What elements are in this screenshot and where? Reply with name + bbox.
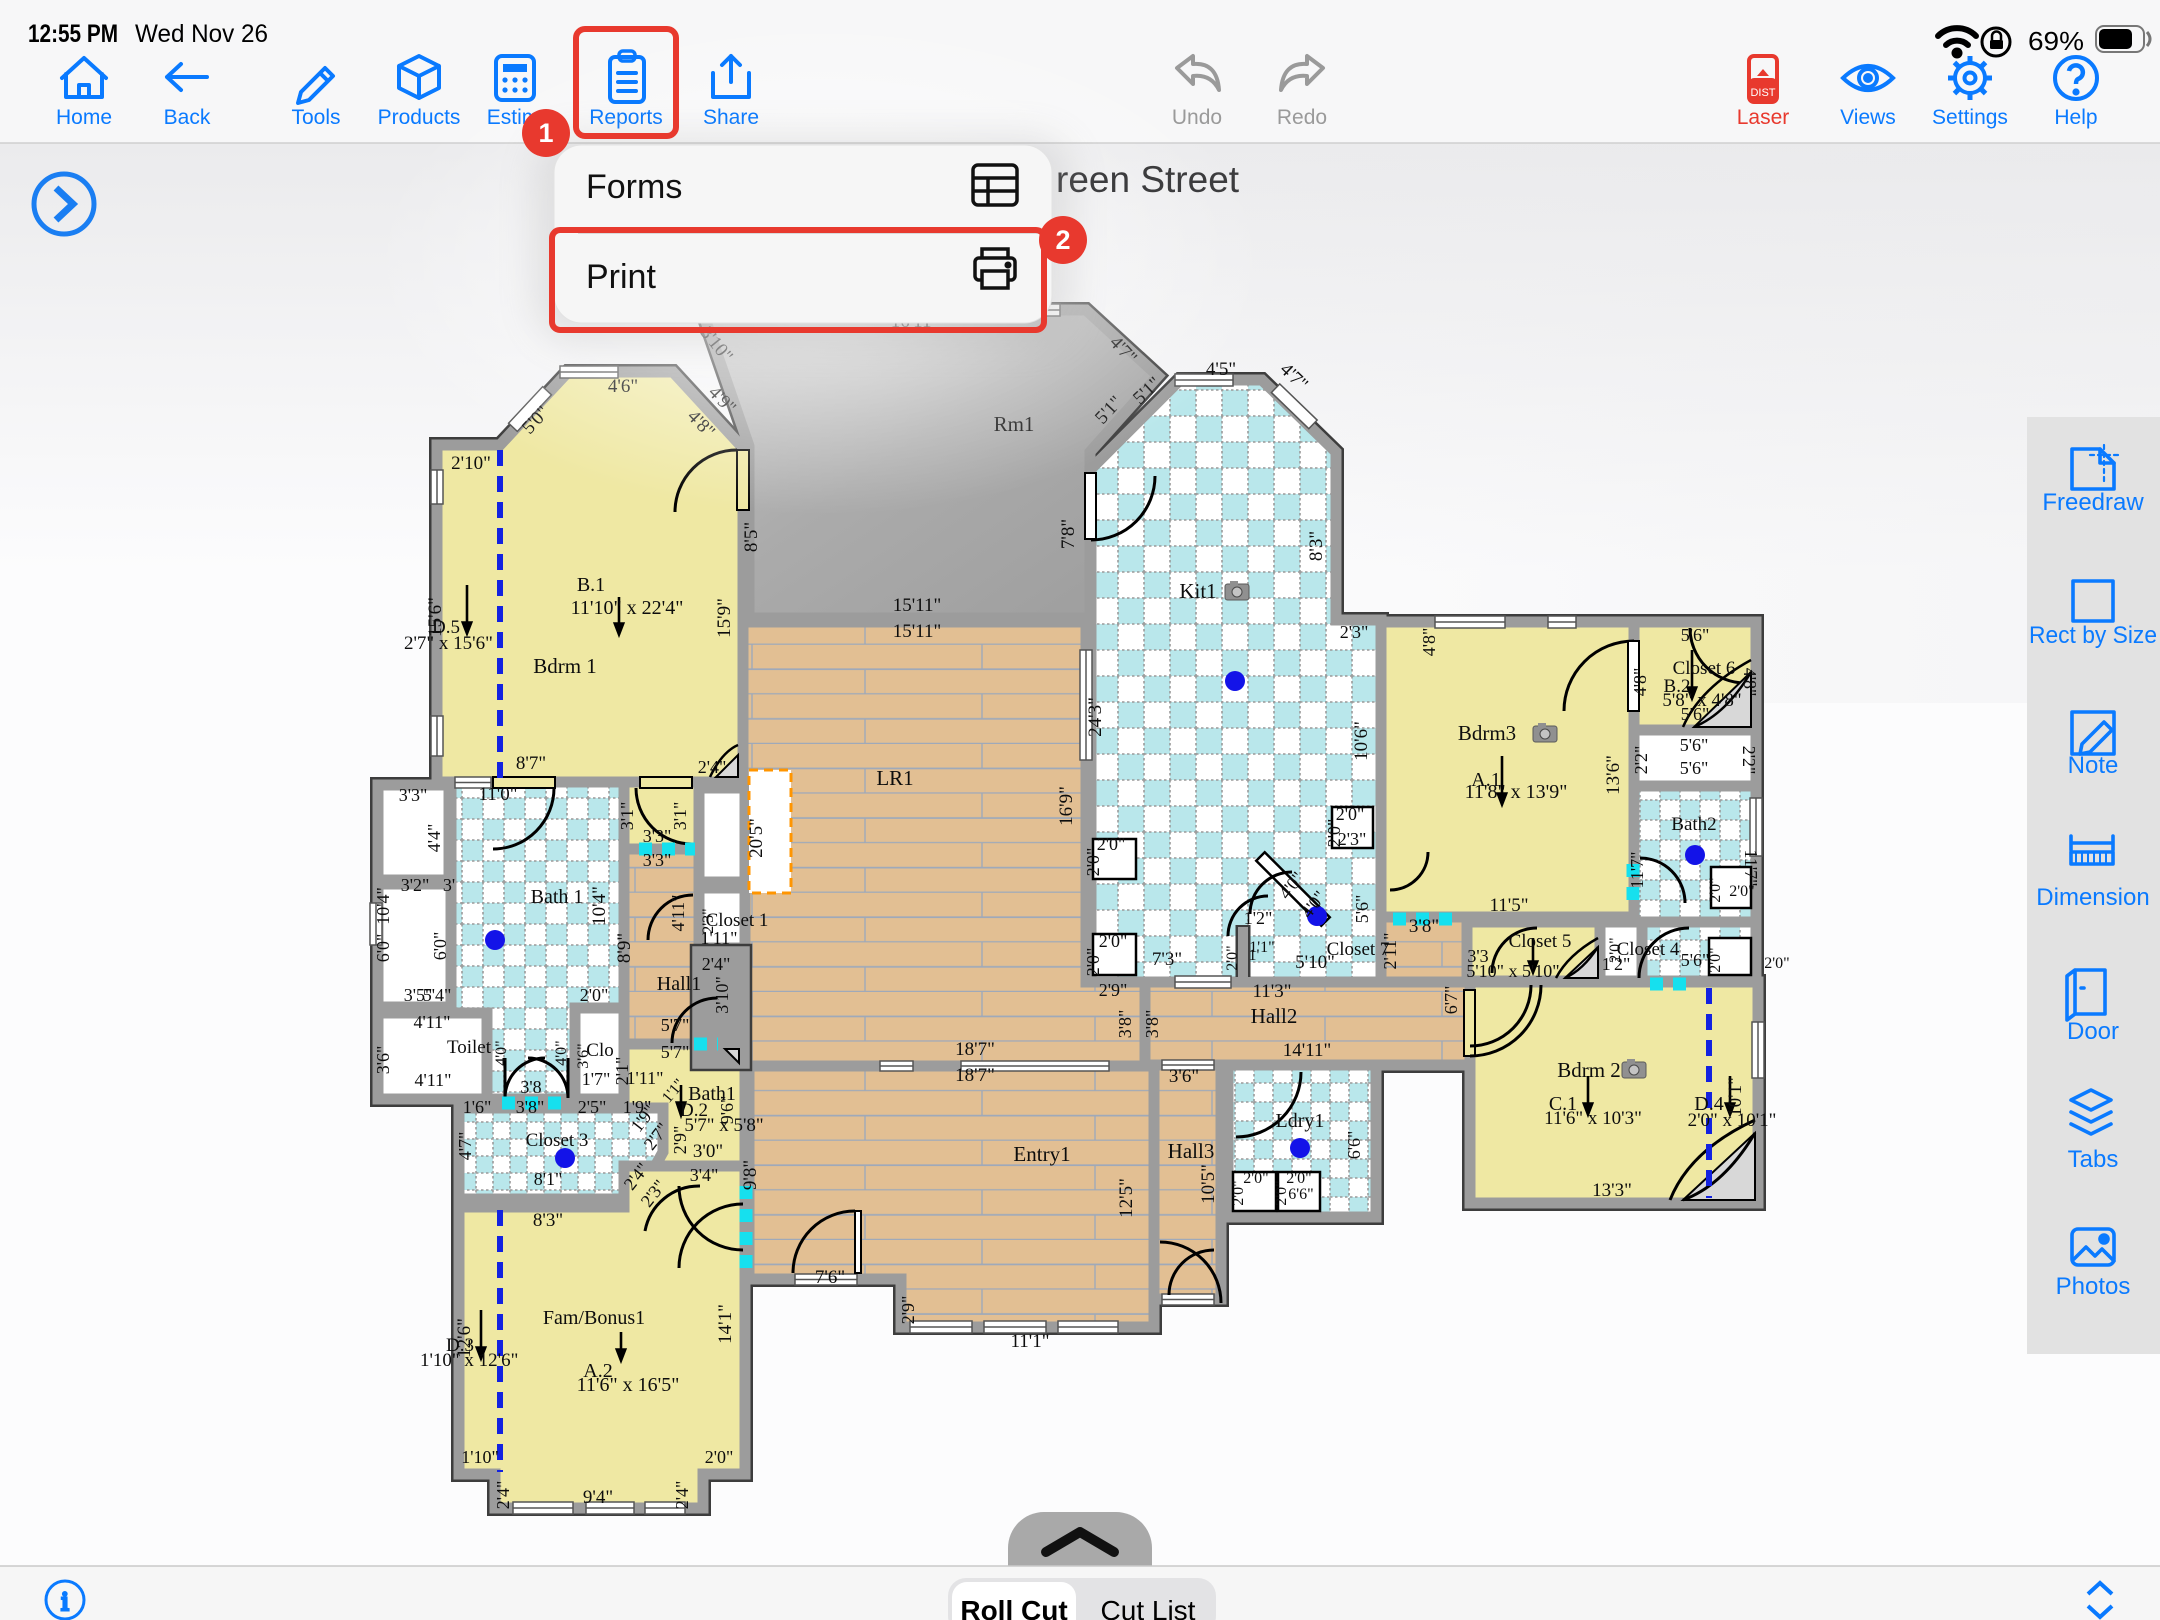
svg-text:9'4": 9'4" (583, 1487, 613, 1508)
svg-text:Bath2: Bath2 (1671, 814, 1716, 835)
svg-text:3'8": 3'8" (1142, 1010, 1162, 1039)
svg-text:2'0": 2'0" (1083, 948, 1103, 977)
svg-text:5'6": 5'6" (1680, 735, 1709, 755)
svg-text:Bdrm 1: Bdrm 1 (533, 654, 597, 678)
svg-text:4'8": 4'8" (1419, 628, 1439, 657)
svg-text:2'0": 2'0" (1707, 947, 1724, 972)
svg-text:4'11": 4'11" (415, 1070, 452, 1090)
svg-text:2'9": 2'9" (898, 1296, 918, 1325)
svg-text:11'0": 11'0" (479, 784, 518, 805)
svg-text:8'1": 8'1" (534, 1169, 563, 1189)
svg-text:5'7": 5'7" (661, 1015, 690, 1035)
svg-text:2'4": 2'4" (702, 954, 731, 974)
svg-text:3'8": 3'8" (1409, 916, 1439, 937)
svg-text:Closet 5: Closet 5 (1509, 931, 1572, 952)
svg-text:Help: Help (2054, 106, 2097, 129)
svg-text:4'0": 4'0" (553, 1040, 570, 1065)
svg-text:4'4": 4'4" (424, 824, 444, 853)
svg-text:2'0": 2'0" (1230, 1180, 1247, 1205)
svg-text:Dimension: Dimension (2036, 884, 2149, 911)
svg-text:Ldry1: Ldry1 (1276, 1110, 1325, 1132)
svg-text:2'11": 2'11" (1380, 933, 1400, 970)
svg-text:Undo: Undo (1172, 106, 1222, 129)
svg-text:LR1: LR1 (876, 766, 913, 790)
svg-text:2'3": 2'3" (1340, 622, 1369, 642)
svg-text:8'3": 8'3" (1306, 531, 1327, 561)
svg-text:Bdrm3: Bdrm3 (1458, 721, 1516, 745)
svg-text:15'11": 15'11" (893, 621, 941, 642)
svg-text:10'1": 10'1" (1725, 1077, 1746, 1117)
svg-text:5'6": 5'6" (1681, 704, 1710, 724)
svg-text:2'4": 2'4" (672, 1481, 692, 1510)
svg-text:5'6": 5'6" (1680, 758, 1709, 778)
svg-text:Rect by Size: Rect by Size (2029, 622, 2157, 649)
svg-text:Toilet: Toilet (447, 1037, 492, 1058)
svg-text:Tools: Tools (291, 106, 340, 129)
svg-text:2'0": 2'0" (580, 985, 609, 1005)
svg-text:16'9": 16'9" (1056, 786, 1077, 826)
svg-text:10'4": 10'4" (373, 887, 393, 925)
svg-text:Fam/Bonus1: Fam/Bonus1 (543, 1307, 645, 1329)
svg-text:Share: Share (703, 106, 759, 129)
svg-text:6'0": 6'0" (430, 932, 450, 961)
svg-text:24'3": 24'3" (1085, 697, 1106, 737)
svg-text:Cut List: Cut List (1101, 1595, 1196, 1620)
svg-text:Reports: Reports (589, 106, 663, 129)
svg-text:9'6": 9'6" (717, 1096, 737, 1125)
svg-text:Redo: Redo (1277, 106, 1327, 129)
svg-text:Settings: Settings (1932, 106, 2008, 129)
svg-text:5'6": 5'6" (1352, 895, 1372, 924)
svg-text:1'11": 1'11" (701, 928, 738, 948)
svg-text:3'6": 3'6" (575, 1043, 592, 1068)
svg-text:Hall1: Hall1 (657, 973, 701, 995)
svg-text:5'4": 5'4" (423, 985, 452, 1005)
svg-text:11'5": 11'5" (1490, 895, 1529, 916)
svg-text:11'6" x 16'5": 11'6" x 16'5" (577, 1374, 680, 1396)
svg-text:Bath 1: Bath 1 (531, 886, 584, 908)
svg-text:2'0": 2'0" (1729, 883, 1754, 900)
svg-text:8'7": 8'7" (516, 753, 546, 774)
svg-text:2'2": 2'2" (1739, 746, 1759, 775)
svg-text:4'8": 4'8" (1740, 668, 1760, 697)
svg-text:7'6": 7'6" (815, 1267, 845, 1288)
svg-text:3'6": 3'6" (373, 1046, 393, 1075)
svg-text:Tabs: Tabs (2068, 1146, 2119, 1173)
svg-text:Home: Home (56, 106, 112, 129)
svg-text:3': 3' (443, 875, 455, 895)
svg-text:Bdrm 2: Bdrm 2 (1557, 1058, 1621, 1082)
svg-text:2'4": 2'4" (698, 757, 727, 777)
svg-text:6'6": 6'6" (1288, 1186, 1313, 1203)
svg-text:Hall2: Hall2 (1251, 1004, 1298, 1028)
svg-text:11'10" x 22'4": 11'10" x 22'4" (571, 597, 684, 619)
svg-text:2'0": 2'0" (1707, 877, 1724, 902)
svg-text:13'6": 13'6" (1603, 755, 1624, 795)
svg-text:2'10": 2'10" (451, 453, 491, 474)
svg-text:10'5": 10'5" (1198, 1164, 1219, 1204)
svg-text:Wed Nov 26: Wed Nov 26 (135, 20, 268, 48)
svg-text:12'5": 12'5" (1116, 1178, 1137, 1218)
svg-text:2'0": 2'0" (1286, 1170, 1311, 1187)
svg-text:3'6": 3'6" (1169, 1066, 1199, 1087)
svg-text:5'7": 5'7" (661, 1042, 690, 1062)
svg-text:Forms: Forms (586, 168, 682, 206)
svg-text:6'7": 6'7" (1441, 986, 1461, 1015)
svg-text:1'11": 1'11" (627, 1068, 664, 1088)
svg-text:11'1": 11'1" (1011, 1331, 1050, 1352)
svg-text:2'2": 2'2" (1631, 746, 1651, 775)
svg-text:5'10" x 5'10": 5'10" x 5'10" (1466, 961, 1559, 981)
svg-text:2'5": 2'5" (578, 1097, 607, 1117)
svg-text:Laser: Laser (1737, 106, 1790, 129)
svg-text:3'0": 3'0" (693, 1141, 723, 1162)
svg-text:2'0": 2'0" (1243, 1170, 1268, 1187)
svg-text:4'11": 4'11" (668, 895, 688, 932)
svg-text:11'8" x 13'9": 11'8" x 13'9" (1465, 781, 1568, 803)
svg-text:4'7": 4'7" (455, 1132, 475, 1161)
svg-text:Products: Products (378, 106, 461, 129)
svg-text:5'6": 5'6" (1681, 625, 1710, 645)
svg-text:7'8": 7'8" (1058, 519, 1079, 549)
svg-text:B.1: B.1 (577, 574, 605, 596)
svg-text:2'0": 2'0" (1224, 945, 1241, 970)
svg-text:Photos: Photos (2056, 1273, 2131, 1300)
svg-text:1'10" x 12'6": 1'10" x 12'6" (420, 1350, 518, 1371)
svg-text:1'2": 1'2" (1244, 908, 1273, 928)
svg-text:11'7": 11'7" (1627, 852, 1647, 889)
svg-text:Hall3: Hall3 (1168, 1139, 1215, 1163)
svg-text:1: 1 (538, 118, 553, 148)
svg-text:18'7": 18'7" (955, 1039, 995, 1060)
svg-text:Entry1: Entry1 (1013, 1142, 1070, 1166)
svg-text:3'8: 3'8 (520, 1077, 541, 1097)
svg-text:2'3": 2'3" (1338, 829, 1367, 849)
svg-text:1': 1' (1249, 947, 1260, 964)
svg-text:69%: 69% (2028, 26, 2084, 56)
svg-text:3'8": 3'8" (1115, 1010, 1135, 1039)
svg-text:Print: Print (586, 258, 656, 296)
svg-text:Back: Back (164, 106, 211, 129)
svg-text:DIST: DIST (1750, 87, 1775, 99)
svg-text:9'8": 9'8" (740, 1160, 761, 1190)
svg-text:11'6" x 10'3": 11'6" x 10'3" (1544, 1108, 1642, 1129)
svg-text:1'10": 1'10" (461, 1447, 499, 1467)
svg-text:3'3": 3'3" (399, 785, 428, 805)
svg-text:10'4": 10'4" (589, 886, 610, 926)
svg-text:4'11": 4'11" (414, 1012, 451, 1032)
svg-text:8'9": 8'9" (614, 933, 635, 963)
svg-text:7'3": 7'3" (1152, 949, 1182, 970)
svg-text:12:55 PM: 12:55 PM (28, 20, 118, 48)
svg-text:15'9": 15'9" (714, 598, 735, 638)
svg-text:11'7": 11'7" (1741, 850, 1761, 887)
svg-text:3'2": 3'2" (401, 875, 430, 895)
svg-text:14'11": 14'11" (1283, 1040, 1331, 1061)
svg-text:Closet 3: Closet 3 (526, 1130, 589, 1151)
svg-text:6'6": 6'6" (1344, 1131, 1364, 1160)
svg-text:2'0": 2'0" (705, 1447, 734, 1467)
svg-text:2'9": 2'9" (1099, 980, 1128, 1000)
svg-text:3'4": 3'4" (690, 1165, 719, 1185)
svg-text:4'0": 4'0" (493, 1040, 510, 1065)
svg-text:8'3": 8'3" (533, 1210, 563, 1231)
svg-text:18'7": 18'7" (955, 1065, 995, 1086)
svg-text:20'5": 20'5" (746, 818, 767, 858)
svg-text:14'1": 14'1" (715, 1304, 736, 1344)
svg-text:3'1": 3'1" (670, 802, 690, 831)
svg-text:Door: Door (2067, 1018, 2119, 1045)
svg-text:2'9": 2'9" (670, 1126, 690, 1155)
svg-text:6'0": 6'0" (373, 934, 393, 963)
svg-text:13'3": 13'3" (1592, 1180, 1632, 1201)
svg-text:2: 2 (1055, 225, 1070, 255)
svg-text:3'3": 3'3" (643, 826, 672, 846)
svg-text:5'6": 5'6" (1681, 950, 1710, 970)
svg-text:2'7" x 15'6": 2'7" x 15'6" (404, 633, 493, 654)
svg-text:i: i (61, 1587, 68, 1616)
svg-text:1'6": 1'6" (463, 1097, 492, 1117)
svg-text:Kit1: Kit1 (1179, 579, 1216, 603)
svg-text:Freedraw: Freedraw (2042, 489, 2144, 516)
svg-text:3'3": 3'3" (643, 850, 672, 870)
svg-text:2'0": 2'0" (1607, 937, 1624, 962)
svg-text:Roll Cut: Roll Cut (960, 1595, 1067, 1620)
svg-text:3'1": 3'1" (617, 802, 637, 831)
svg-text:8'5": 8'5" (741, 522, 762, 552)
svg-text:4'8": 4'8" (1630, 668, 1650, 697)
svg-text:11'3": 11'3" (1253, 981, 1292, 1002)
svg-text:2'0": 2'0" (1764, 955, 1789, 972)
svg-text:3'8": 3'8" (516, 1097, 545, 1117)
svg-text:Note: Note (2068, 752, 2119, 779)
svg-text:15'11": 15'11" (893, 595, 941, 616)
svg-text:2'4": 2'4" (493, 1481, 513, 1510)
svg-text:10'6": 10'6" (1351, 721, 1372, 761)
svg-text:reen Street: reen Street (1056, 159, 1240, 200)
svg-text:2'0": 2'0" (1083, 848, 1103, 877)
svg-text:3'10": 3'10" (712, 976, 732, 1014)
svg-text:1'7": 1'7" (582, 1069, 611, 1089)
svg-text:Views: Views (1840, 106, 1896, 129)
